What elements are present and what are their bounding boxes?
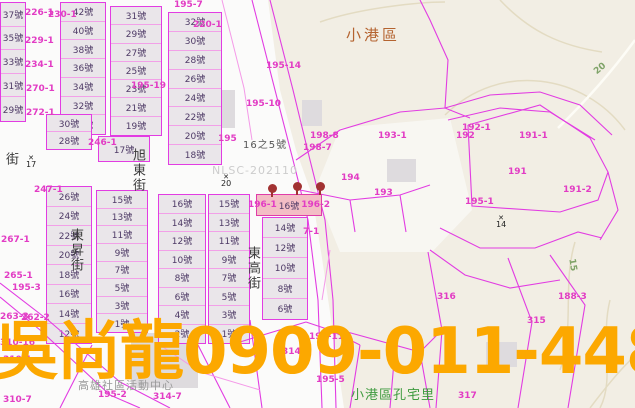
highlight-parcel-left: 196-1 bbox=[248, 200, 277, 210]
cadastral-parcel-label: 195-7 bbox=[174, 1, 203, 10]
cadastral-parcel-label: 230-1 bbox=[48, 11, 77, 20]
cadastral-parcel-label: 229-1 bbox=[25, 37, 54, 46]
cadastral-parcel-label: 246-1 bbox=[88, 139, 117, 148]
cadastral-parcel-label: 192 bbox=[456, 132, 475, 141]
cadastral-parcel-label: 195-2 bbox=[98, 391, 127, 400]
street-name-label: 街 bbox=[1, 152, 20, 167]
cadastral-parcel-label: 265-1 bbox=[4, 272, 33, 281]
highlight-lot-number: 16號 bbox=[279, 199, 299, 212]
cadastral-parcel-label: 247-1 bbox=[34, 186, 63, 195]
survey-marker-number: 17 bbox=[26, 161, 36, 169]
cadastral-parcel-label: 317 bbox=[458, 392, 477, 401]
district-label: 小港區 bbox=[346, 24, 400, 45]
cadastral-parcel-label: 194 bbox=[341, 174, 360, 183]
cadastral-parcel-label: 7-1 bbox=[303, 228, 319, 237]
cadastral-parcel-label: 220-1 bbox=[193, 21, 222, 30]
cadastral-parcel-label: 310-7 bbox=[3, 396, 32, 405]
street-name-label: 旭東街 bbox=[128, 148, 147, 193]
cadastral-parcel-label: 198-7 bbox=[303, 144, 332, 153]
cadastral-parcel-label: 191-1 bbox=[519, 132, 548, 141]
survey-marker: ✕20 bbox=[221, 174, 231, 188]
agent-watermark: 吳尚龍0909-011-448 bbox=[0, 320, 635, 384]
cadastral-parcel-label: 195-1 bbox=[465, 198, 494, 207]
highlighted-lot[interactable]: 196-1 16號 196-2 bbox=[256, 194, 322, 216]
survey-marker: ✕17 bbox=[26, 155, 36, 169]
cadastral-parcel-label: 193-1 bbox=[378, 132, 407, 141]
cadastral-parcel-label: 272-1 bbox=[26, 109, 55, 118]
map-canvas[interactable]: 37號35號33號31號29號42號40號38號36號34號32號30號31號2… bbox=[0, 0, 635, 408]
village-label: 小港區孔宅里 bbox=[351, 384, 435, 403]
cadastral-parcel-label: 188-3 bbox=[558, 293, 587, 302]
survey-marker-number: 14 bbox=[496, 221, 506, 229]
map-pin-icon[interactable] bbox=[316, 182, 325, 191]
map-pin-icon[interactable] bbox=[293, 182, 302, 191]
street-name-label: 東高街 bbox=[243, 246, 262, 291]
cadastral-parcel-label: 314-7 bbox=[153, 393, 182, 402]
cadastral-parcel-label: 195 bbox=[218, 135, 237, 144]
cadastral-parcel-label: 270-1 bbox=[26, 85, 55, 94]
survey-marker: ✕14 bbox=[496, 215, 506, 229]
cadastral-parcel-label: 195-19 bbox=[131, 82, 166, 91]
cadastral-parcel-label: 195-10 bbox=[246, 100, 281, 109]
survey-marker-number: 20 bbox=[221, 180, 231, 188]
cadastral-parcel-label: 198-8 bbox=[310, 132, 339, 141]
cadastral-parcel-label: 191 bbox=[508, 168, 527, 177]
cadastral-parcel-label: 316 bbox=[437, 293, 456, 302]
cadastral-parcel-label: 193 bbox=[374, 189, 393, 198]
cadastral-parcel-label: 234-1 bbox=[25, 61, 54, 70]
cadastral-parcel-label: 267-1 bbox=[1, 236, 30, 245]
cadastral-parcel-label: 195-14 bbox=[266, 62, 301, 71]
cadastral-parcel-label: 195-3 bbox=[12, 284, 41, 293]
lot-annotation: 16之5號 bbox=[243, 136, 287, 151]
highlight-parcel-right: 196-2 bbox=[301, 200, 330, 210]
street-name-label: 東昇街 bbox=[66, 228, 85, 273]
map-pin-icon[interactable] bbox=[268, 184, 277, 193]
cadastral-parcel-label: 191-2 bbox=[563, 186, 592, 195]
elevation-label: 15 bbox=[566, 258, 578, 272]
